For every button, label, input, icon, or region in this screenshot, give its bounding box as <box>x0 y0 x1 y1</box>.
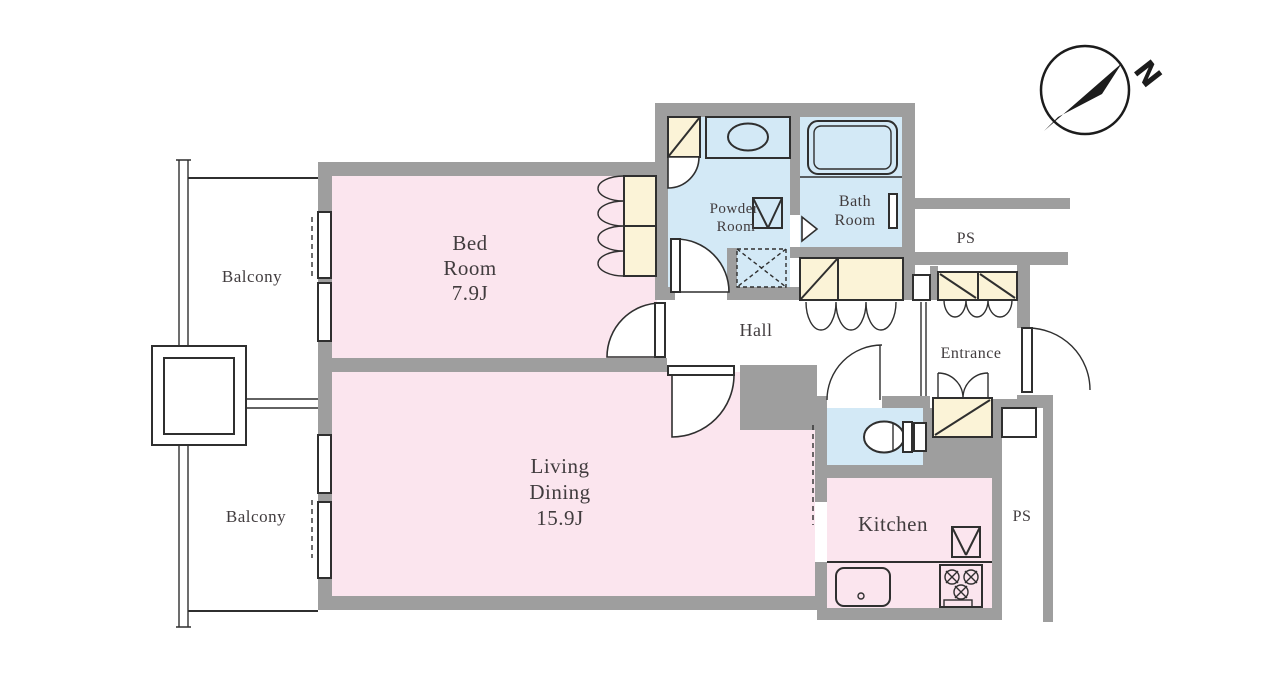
bath-door-opening <box>790 215 800 247</box>
entrance-storage-doors <box>938 373 988 398</box>
shoe-closet-folding-doors <box>944 300 1012 317</box>
bedroom-label-line1: Bed <box>452 231 487 255</box>
balcony-structures <box>152 160 318 627</box>
shaft-box <box>1002 408 1036 437</box>
bath-room-label-line2: Room <box>834 212 875 229</box>
compass: N <box>1041 46 1169 134</box>
hall-label: Hall <box>740 320 773 340</box>
entrance-door-swing <box>1028 328 1090 390</box>
toilet-bowl <box>864 422 904 453</box>
entrance-door-leaf <box>1022 328 1032 392</box>
ps-lower-label: PS <box>1013 508 1032 525</box>
bath-towel-bar <box>889 194 897 228</box>
kitchen-label: Kitchen <box>858 512 928 536</box>
powder-room-label-line1: Powder <box>710 201 759 217</box>
hall-closet <box>800 258 903 300</box>
toilet-tank <box>903 422 912 452</box>
entrance-step-line <box>921 302 926 396</box>
living-door-leaf <box>668 366 734 375</box>
living-label-line2: Dining <box>529 480 590 504</box>
compass-circle <box>1041 46 1129 134</box>
powder-door-leaf <box>671 239 680 292</box>
floor-plan: N Balcony Balcony Bed Room 7.9J Living D… <box>0 0 1284 696</box>
bedroom-window <box>318 283 331 341</box>
balcony-bottom-label: Balcony <box>226 507 286 526</box>
balcony-top-label: Balcony <box>222 267 282 286</box>
entrance-label: Entrance <box>941 345 1002 362</box>
balcony-pillar-outer <box>152 346 246 445</box>
bedroom-door-leaf <box>655 303 665 357</box>
living-size-label: 15.9J <box>536 506 583 530</box>
pillar-connector <box>246 399 318 408</box>
corridor-door-swing <box>827 345 882 400</box>
living-label-line1: Living <box>531 454 590 478</box>
ps-upper-label: PS <box>957 230 976 247</box>
meter-box <box>913 275 930 300</box>
bedroom-size-label: 7.9J <box>452 281 488 305</box>
living-window <box>318 435 331 493</box>
north-label: N <box>1127 54 1169 94</box>
bedroom-label-line2: Room <box>443 256 496 280</box>
bedroom-window <box>318 212 331 278</box>
bath-room-label-line1: Bath <box>839 193 871 210</box>
toilet-cistern <box>914 423 926 451</box>
living-window <box>318 502 331 578</box>
powder-room-label-line2: Room <box>717 219 756 235</box>
hall-closet-folding-doors <box>806 302 896 330</box>
